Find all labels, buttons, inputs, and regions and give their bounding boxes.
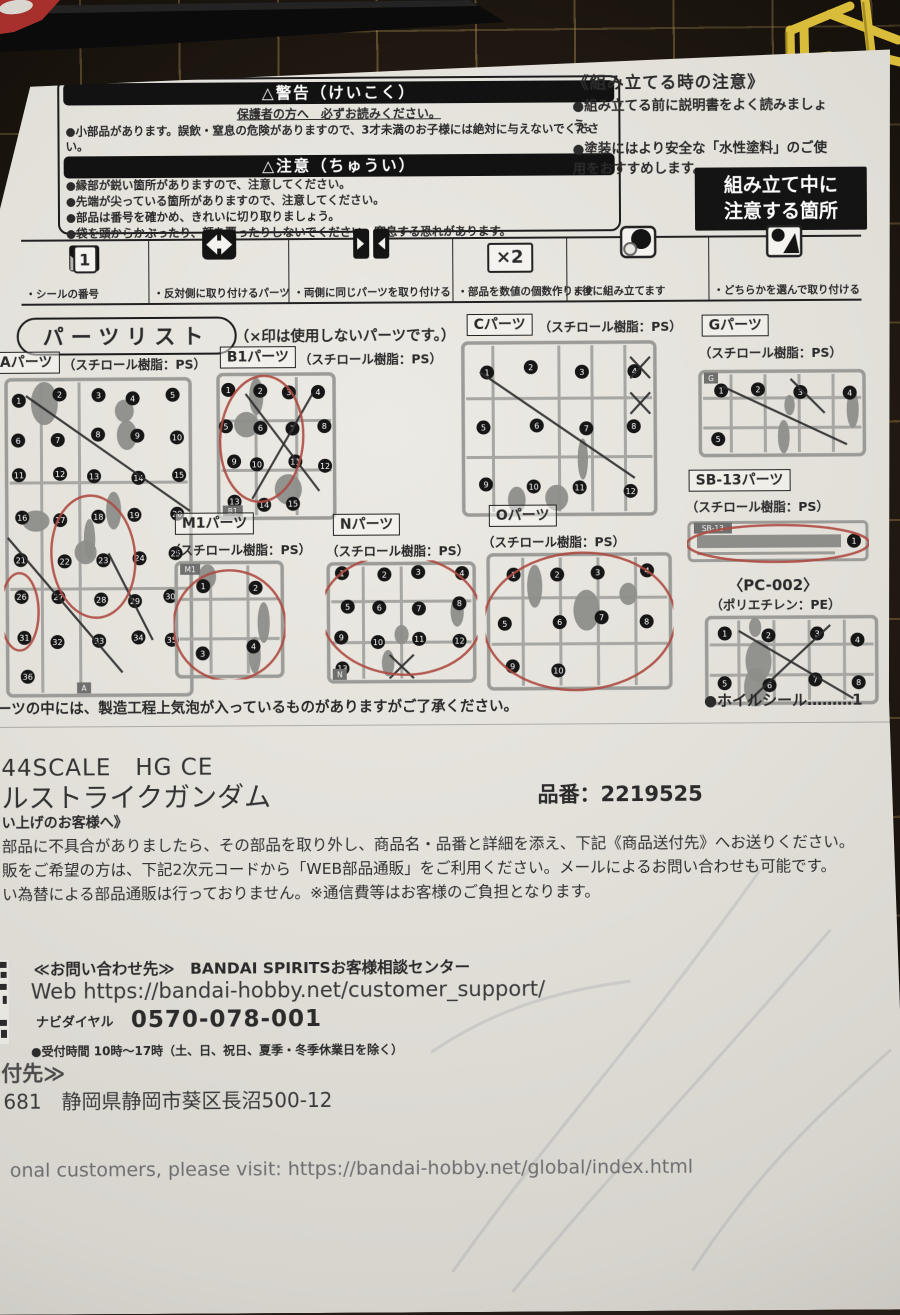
section-divider bbox=[0, 721, 900, 728]
part-material-a: （スチロール樹脂：PS） bbox=[63, 354, 206, 374]
warning-item: ●小部品があります。誤飲・窒息の危険がありますので、3才未満のお子様には絶対に与… bbox=[65, 121, 612, 155]
svg-text:2: 2 bbox=[57, 391, 62, 400]
svg-text:2: 2 bbox=[253, 584, 258, 593]
svg-text:3: 3 bbox=[96, 391, 101, 400]
part-label-sb13: SB-13パーツ bbox=[689, 469, 791, 492]
svg-text:6: 6 bbox=[534, 421, 539, 430]
part-label-c: Cパーツ bbox=[467, 314, 533, 336]
svg-text:10: 10 bbox=[172, 433, 182, 442]
svg-text:22: 22 bbox=[60, 557, 70, 566]
symbol-legend: 1 ・シールの番号 ・反対側に取り付けるパーツ bbox=[21, 235, 861, 306]
svg-text:26: 26 bbox=[16, 593, 26, 602]
svg-text:2: 2 bbox=[528, 363, 533, 372]
svg-text:3: 3 bbox=[579, 368, 584, 377]
both-sides-icon bbox=[351, 228, 391, 260]
parts-list-note: （×印は使用しないパーツです。） bbox=[235, 324, 456, 346]
svg-text:11: 11 bbox=[14, 471, 24, 480]
svg-text:N: N bbox=[337, 670, 343, 679]
svg-text:9: 9 bbox=[135, 432, 140, 441]
svg-text:A: A bbox=[81, 684, 87, 693]
sprue-b1: 123456789101112131415B1 bbox=[215, 371, 338, 522]
legend-label: ・シールの番号 bbox=[25, 286, 99, 301]
svg-text:5: 5 bbox=[170, 391, 175, 400]
instruction-sheet: △警告（けいこく） 保護者の方へ 必ずお読みください。 ●小部品があります。誤飲… bbox=[0, 49, 900, 1315]
contact-hours: ●受付時間 10時～17時（土、日、祝日、夏季・冬季休業日を除く） bbox=[31, 1040, 403, 1059]
svg-text:7: 7 bbox=[55, 436, 60, 445]
sprue-c: 123456789101112 bbox=[460, 339, 659, 518]
svg-text:4: 4 bbox=[251, 643, 256, 652]
sprue-o: 12345678910 bbox=[485, 551, 674, 692]
multiply-count-icon: ×2 bbox=[487, 243, 533, 273]
svg-text:6: 6 bbox=[258, 424, 263, 433]
shipping-heading: 付先≫ bbox=[1, 1058, 65, 1088]
svg-text:4: 4 bbox=[855, 636, 860, 645]
legend-cell-multiply: ×2 ・部品を数値の個数作ります bbox=[453, 238, 567, 301]
svg-text:2: 2 bbox=[766, 631, 771, 640]
svg-text:M1: M1 bbox=[184, 565, 196, 574]
svg-text:9: 9 bbox=[232, 458, 237, 467]
svg-text:8: 8 bbox=[644, 617, 649, 626]
svg-text:6: 6 bbox=[16, 437, 21, 446]
assemble-later-icon bbox=[619, 225, 657, 259]
svg-text:15: 15 bbox=[288, 500, 298, 509]
svg-text:1: 1 bbox=[201, 582, 206, 591]
part-material-g: （スチロール樹脂：PS） bbox=[699, 342, 842, 362]
badge-line: 注意する箇所 bbox=[724, 199, 838, 222]
svg-text:15: 15 bbox=[174, 471, 184, 480]
svg-text:2: 2 bbox=[555, 571, 560, 580]
svg-text:9: 9 bbox=[339, 634, 344, 643]
legend-label: ・反対側に取り付けるパーツ bbox=[153, 285, 289, 301]
legend-label: ・どちらかを選んで取り付ける bbox=[713, 282, 860, 298]
legend-cell-opposite: ・反対側に取り付けるパーツ bbox=[149, 240, 289, 303]
svg-text:10: 10 bbox=[553, 666, 563, 675]
svg-text:1: 1 bbox=[16, 397, 21, 406]
svg-text:4: 4 bbox=[847, 389, 852, 398]
legend-label: ・後に組み立てます bbox=[571, 283, 665, 299]
svg-text:28: 28 bbox=[96, 596, 106, 605]
svg-text:8: 8 bbox=[322, 422, 327, 431]
part-material-pc002: （ポリエチレン：PE） bbox=[710, 594, 840, 614]
part-label-b1: B1パーツ bbox=[220, 346, 296, 368]
sticker-sample-number: 1 bbox=[73, 245, 97, 273]
svg-text:4: 4 bbox=[130, 394, 135, 403]
svg-text:8: 8 bbox=[631, 422, 636, 431]
legend-cell-both-sides: ・両側に同じパーツを取り付ける bbox=[289, 239, 453, 302]
shipping-address: 681 静岡県静岡市葵区長沼500-12 bbox=[3, 1084, 332, 1115]
parts-footnote: ーツの中には、製造工程上気泡が入っているものがありますがご了承ください。 bbox=[0, 695, 518, 719]
svg-text:2: 2 bbox=[258, 387, 263, 396]
sprue-g: 12345G bbox=[697, 368, 868, 459]
legend-label: ・両側に同じパーツを取り付ける bbox=[293, 284, 450, 300]
foil-seal-line: ●ホイルシール………1 bbox=[704, 689, 863, 711]
part-material-c: （スチロール樹脂：PS） bbox=[539, 316, 682, 336]
svg-text:13: 13 bbox=[229, 498, 239, 507]
svg-text:12: 12 bbox=[320, 462, 330, 471]
svg-text:4: 4 bbox=[315, 388, 320, 397]
part-label-a: Aパーツ bbox=[0, 352, 60, 374]
svg-text:7: 7 bbox=[416, 605, 421, 614]
svg-text:5: 5 bbox=[502, 620, 507, 629]
svg-text:1: 1 bbox=[226, 386, 231, 395]
svg-text:18: 18 bbox=[93, 513, 103, 522]
svg-text:34: 34 bbox=[133, 633, 143, 642]
product-name: ルストライクガンダム bbox=[1, 775, 271, 816]
svg-text:3: 3 bbox=[416, 568, 421, 577]
artwork-showthrough bbox=[369, 749, 900, 1312]
part-material-sb13: （スチロール樹脂：PS） bbox=[686, 496, 829, 516]
opposite-side-icon bbox=[200, 228, 238, 260]
choose-one-icon bbox=[765, 224, 803, 258]
svg-text:12: 12 bbox=[55, 470, 65, 479]
assembly-caution-badge: 組み立て中に 注意する箇所 bbox=[695, 167, 867, 231]
sprue-a: 1234567891011121314151617181920212223242… bbox=[3, 376, 195, 699]
svg-text:23: 23 bbox=[98, 556, 108, 565]
svg-text:10: 10 bbox=[373, 638, 383, 647]
svg-text:11: 11 bbox=[575, 483, 585, 492]
svg-text:12: 12 bbox=[626, 487, 636, 496]
part-label-n: Nパーツ bbox=[333, 513, 401, 535]
svg-text:36: 36 bbox=[23, 673, 33, 682]
sprue-n: 12345678910111213N bbox=[325, 560, 478, 685]
legend-cell-choose: ・どちらかを選んで取り付ける bbox=[709, 237, 859, 300]
part-material-n: （スチロール樹脂：PS） bbox=[326, 540, 469, 560]
assembly-notes-title: 《組み立てる時の注意》 bbox=[572, 68, 834, 94]
contact-phone: 0570-078-001 bbox=[131, 1006, 322, 1033]
svg-text:6: 6 bbox=[377, 604, 382, 613]
photo-of-instruction-sheet: { "photo": { "mat_color": "#241c14", "pa… bbox=[0, 0, 900, 1200]
svg-text:10: 10 bbox=[252, 460, 262, 469]
svg-text:3: 3 bbox=[200, 649, 205, 658]
part-material-o: （スチロール樹脂：PS） bbox=[482, 531, 625, 551]
svg-text:2: 2 bbox=[755, 385, 760, 394]
parts-list-title: パーツリスト bbox=[17, 316, 237, 355]
part-material-m1: （スチロール樹脂：PS） bbox=[168, 539, 311, 559]
svg-text:31: 31 bbox=[19, 634, 29, 643]
svg-text:5: 5 bbox=[722, 679, 727, 688]
part-label-m1: M1パーツ bbox=[175, 512, 255, 534]
svg-text:5: 5 bbox=[716, 435, 721, 444]
assembly-notes: 《組み立てる時の注意》 ●組み立てる前に説明書をよく読みましょう。 ●塗装にはよ… bbox=[572, 68, 835, 180]
svg-text:5: 5 bbox=[223, 422, 228, 431]
legend-cell-sticker: 1 ・シールの番号 bbox=[21, 241, 149, 304]
badge-line: 組み立て中に bbox=[724, 174, 838, 197]
svg-text:5: 5 bbox=[345, 603, 350, 612]
part-label-pc002: 〈PC-002〉 bbox=[728, 574, 818, 596]
part-label-g: Gパーツ bbox=[702, 314, 769, 336]
svg-text:11: 11 bbox=[414, 635, 424, 644]
global-customers-line: onal customers, please visit: https://ba… bbox=[10, 1156, 693, 1182]
svg-text:16: 16 bbox=[17, 514, 27, 523]
svg-text:12: 12 bbox=[454, 637, 464, 646]
svg-text:1: 1 bbox=[851, 537, 856, 546]
svg-text:3: 3 bbox=[595, 569, 600, 578]
svg-text:6: 6 bbox=[557, 618, 562, 627]
navi-dial-label: ナビダイヤル bbox=[36, 1011, 114, 1030]
svg-text:1: 1 bbox=[722, 629, 727, 638]
warning-title-bar: △警告（けいこく） bbox=[63, 80, 614, 105]
legend-cell-later: ・後に組み立てます bbox=[567, 238, 709, 301]
svg-text:10: 10 bbox=[529, 482, 539, 491]
sprue-m1: 1234M1 bbox=[173, 559, 286, 680]
assembly-note-item: ●組み立てる前に説明書をよく読みましょう。 bbox=[572, 96, 834, 137]
svg-text:5: 5 bbox=[481, 423, 486, 432]
svg-text:19: 19 bbox=[129, 511, 139, 520]
warning-box: △警告（けいこく） 保護者の方へ 必ずお読みください。 ●小部品があります。誤飲… bbox=[57, 75, 621, 234]
customer-heading: い上げのお客様へ》 bbox=[2, 812, 128, 833]
svg-text:7: 7 bbox=[599, 613, 604, 622]
svg-text:32: 32 bbox=[52, 638, 62, 647]
svg-text:2: 2 bbox=[382, 570, 387, 579]
part-material-b1: （スチロール樹脂：PS） bbox=[299, 348, 442, 368]
warning-subtitle: 保護者の方へ 必ずお読みください。 bbox=[63, 103, 614, 123]
svg-text:9: 9 bbox=[483, 480, 488, 489]
svg-text:8: 8 bbox=[856, 678, 861, 687]
part-label-o: Oパーツ bbox=[489, 505, 557, 527]
svg-text:8: 8 bbox=[457, 599, 462, 608]
svg-text:13: 13 bbox=[89, 472, 99, 481]
svg-text:7: 7 bbox=[584, 424, 589, 433]
qr-code-partial bbox=[0, 960, 9, 1044]
svg-text:G: G bbox=[708, 374, 714, 383]
svg-text:8: 8 bbox=[95, 431, 100, 440]
sprue-sb13: 1SB-13 bbox=[687, 518, 869, 565]
